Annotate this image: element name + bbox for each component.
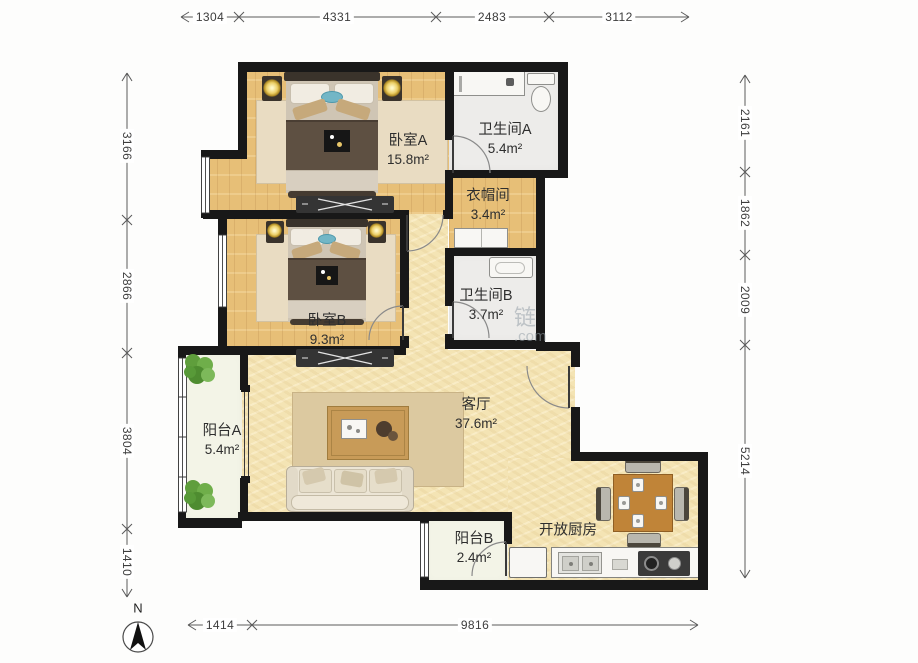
headboard [284,72,380,81]
dim-right-2: 1862 [738,196,752,230]
bed-foot-sheet [286,170,378,190]
wall [698,452,708,590]
watermark-domain: .com [514,329,547,345]
plate-dot [636,519,640,523]
plate-dot [622,501,626,505]
wall [571,351,580,367]
room-name: 卧室A [387,132,429,151]
soap-dish [459,76,462,92]
wall [445,62,454,140]
sink-basin [582,556,599,571]
dim-right-4: 5214 [738,444,752,478]
plate-dot [659,501,663,505]
drain-dot [589,562,593,566]
burner-dial-icon [668,557,681,570]
room-name: 阳台B [455,530,494,549]
tray-item [321,270,325,274]
room-name: 客厅 [455,396,497,415]
sofa-back [291,495,409,510]
room-label-bathroom-a: 卫生间A 5.4m² [478,121,531,157]
room-label-bedroom-b: 卧室B 9.3m² [308,312,347,348]
wall [445,170,453,214]
decor-bowl [388,431,398,441]
wall [178,350,186,522]
wall [400,210,409,308]
dining-chair [627,533,661,548]
room-label-living: 客厅 37.6m² [455,396,497,432]
room-area: 15.8m² [387,151,429,169]
floorplan-canvas: 卧室A 15.8m² 卫生间A 5.4m² 衣帽间 3.4m² 卧室B 9.3m… [0,0,918,663]
bed-bench [288,191,376,198]
dim-top-1: 1304 [193,10,227,24]
wall [178,518,242,528]
dim-bottom-2: 9816 [458,618,492,632]
wall [240,350,248,390]
drain-dot [569,562,573,566]
wall [558,62,568,178]
dining-chair [674,487,689,521]
dim-left-2: 2866 [120,269,134,303]
wall [203,210,407,219]
tray-item [330,135,334,139]
wall [238,62,247,158]
bed-a [284,72,380,198]
dim-top-3: 2483 [475,10,509,24]
wall [201,150,210,218]
burner-icon [644,556,659,571]
toilet [527,73,555,85]
floor-corridor [404,214,448,354]
dining-chair [596,487,611,521]
wall [445,256,454,306]
tray-item [327,276,331,280]
fridge [509,547,547,578]
plate [618,496,630,510]
watermark-char: 链 [514,306,547,329]
sink-unit [558,552,602,574]
dim-bottom-1: 1414 [203,618,237,632]
dim-top-4: 3112 [602,10,635,24]
wall [571,452,708,461]
dim-left-3: 3804 [120,424,134,458]
room-area: 37.6m² [455,415,497,433]
compass-north-label: N [133,601,142,616]
room-area: 3.4m² [466,206,510,224]
tray-item [347,425,352,430]
plate [632,478,644,492]
bed-b [286,219,368,326]
bed-tray [324,130,350,152]
cutting-board [612,559,628,570]
wall [445,248,545,256]
room-label-kitchen: 开放厨房 [539,522,597,541]
room-label-balcony-b: 阳台B 2.4m² [455,530,494,566]
basin-inner [495,262,525,274]
wall [178,346,406,355]
dim-left-1: 3166 [120,129,134,163]
faucet-icon [506,78,514,86]
tray-item [356,429,360,433]
wall [240,478,248,518]
plate [632,514,644,528]
compass-icon [123,622,153,652]
room-area: 5.4m² [203,441,242,459]
room-name: 衣帽间 [466,187,510,206]
cloakroom-cabinet [454,228,508,248]
room-label-balcony-a: 阳台A 5.4m² [203,422,242,458]
toilet-bowl [531,86,551,112]
room-name: 卫生间A [478,121,531,140]
wall [400,336,409,348]
table-tray [341,419,367,439]
room-area: 5.4m² [478,140,531,158]
floor-bedroom-a-bay [205,152,250,214]
kitchen-counter [551,547,699,578]
plate [655,496,667,510]
wall [420,580,708,590]
wall [238,62,568,72]
wall [571,407,580,457]
lamp-icon [267,223,282,238]
tray-item [337,142,342,147]
sofa [286,466,414,512]
room-label-bathroom-b: 卫生间B 3.7m² [459,287,512,323]
lamp-icon [263,79,281,97]
room-label-bedroom-a: 卧室A 15.8m² [387,132,429,168]
dim-left-4: 1410 [120,545,134,579]
room-area: 3.7m² [459,306,512,324]
coffee-table [327,406,409,460]
room-name: 卫生间B [459,287,512,306]
vanity-counter [453,71,525,96]
bed-tray [316,266,338,285]
lamp-icon [369,223,384,238]
dim-top-2: 4331 [320,10,354,24]
watermark: 链 .com [514,306,547,345]
sink-basin [562,556,579,571]
stove [638,551,690,576]
room-area: 2.4m² [455,549,494,567]
cabinet-divider [481,229,482,247]
dim-right-3: 2009 [738,283,752,317]
washbasin [489,257,533,278]
plate-dot [636,483,640,487]
room-name: 卧室B [308,312,347,331]
wall [238,512,512,521]
room-label-cloakroom: 衣帽间 3.4m² [466,187,510,223]
dim-right-1: 2161 [738,106,752,140]
dining-table [613,474,673,532]
room-name: 阳台A [203,422,242,441]
wall [218,210,227,350]
room-name: 开放厨房 [539,522,597,541]
wall [445,170,545,178]
headboard [286,219,368,227]
lamp-icon [383,79,401,97]
wall [420,512,429,582]
room-area: 9.3m² [308,331,347,349]
